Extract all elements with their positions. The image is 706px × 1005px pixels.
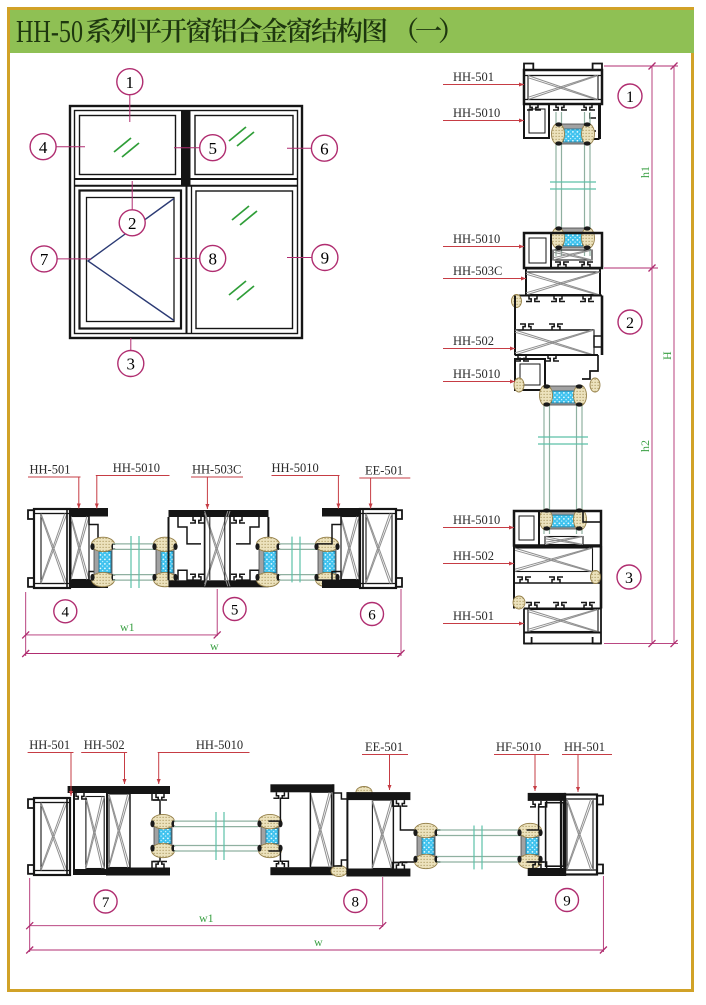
svg-text:HH-502: HH-502 xyxy=(453,549,494,563)
svg-text:HH-50: HH-50 xyxy=(16,13,83,49)
svg-text:6: 6 xyxy=(368,607,376,623)
svg-text:HH-501: HH-501 xyxy=(30,463,71,477)
svg-text:1: 1 xyxy=(126,73,135,92)
svg-text:5: 5 xyxy=(208,139,217,158)
svg-text:HH-501: HH-501 xyxy=(564,740,605,754)
svg-text:HH-501: HH-501 xyxy=(29,738,70,752)
svg-text:1: 1 xyxy=(626,89,634,106)
svg-text:EE-501: EE-501 xyxy=(365,740,403,754)
svg-text:8: 8 xyxy=(352,894,360,910)
svg-text:EE-501: EE-501 xyxy=(365,464,403,478)
svg-text:6: 6 xyxy=(320,139,329,158)
svg-text:HH-5010: HH-5010 xyxy=(272,461,319,475)
svg-text:HH-501: HH-501 xyxy=(453,609,494,623)
svg-text:9: 9 xyxy=(321,249,330,268)
svg-text:HH-503C: HH-503C xyxy=(453,264,502,278)
svg-text:4: 4 xyxy=(39,138,48,157)
svg-text:w: w xyxy=(210,639,219,653)
svg-text:H: H xyxy=(660,351,674,360)
svg-text:HH-502: HH-502 xyxy=(453,334,494,348)
svg-text:w1: w1 xyxy=(199,911,214,925)
svg-text:w1: w1 xyxy=(120,620,135,634)
svg-text:4: 4 xyxy=(62,605,70,621)
svg-text:HH-502: HH-502 xyxy=(84,738,125,752)
svg-text:HF-5010: HF-5010 xyxy=(496,740,541,754)
svg-text:h1: h1 xyxy=(638,166,652,178)
svg-text:w: w xyxy=(314,935,323,949)
svg-text:7: 7 xyxy=(40,250,49,269)
svg-text:HH-5010: HH-5010 xyxy=(453,106,500,120)
svg-text:2: 2 xyxy=(128,214,137,233)
svg-text:HH-5010: HH-5010 xyxy=(453,513,500,527)
svg-text:2: 2 xyxy=(626,315,634,332)
svg-text:8: 8 xyxy=(208,250,217,269)
svg-text:3: 3 xyxy=(127,355,136,374)
svg-text:5: 5 xyxy=(231,602,239,618)
svg-text:7: 7 xyxy=(102,895,110,911)
svg-text:HH-5010: HH-5010 xyxy=(196,738,243,752)
svg-text:HH-501: HH-501 xyxy=(453,70,494,84)
svg-text:HH-503C: HH-503C xyxy=(192,463,241,477)
svg-text:9: 9 xyxy=(563,893,571,909)
svg-text:3: 3 xyxy=(625,570,633,587)
svg-text:HH-5010: HH-5010 xyxy=(113,461,160,475)
svg-text:h2: h2 xyxy=(638,440,652,452)
svg-text:HH-5010: HH-5010 xyxy=(453,367,500,381)
svg-text:HH-5010: HH-5010 xyxy=(453,232,500,246)
